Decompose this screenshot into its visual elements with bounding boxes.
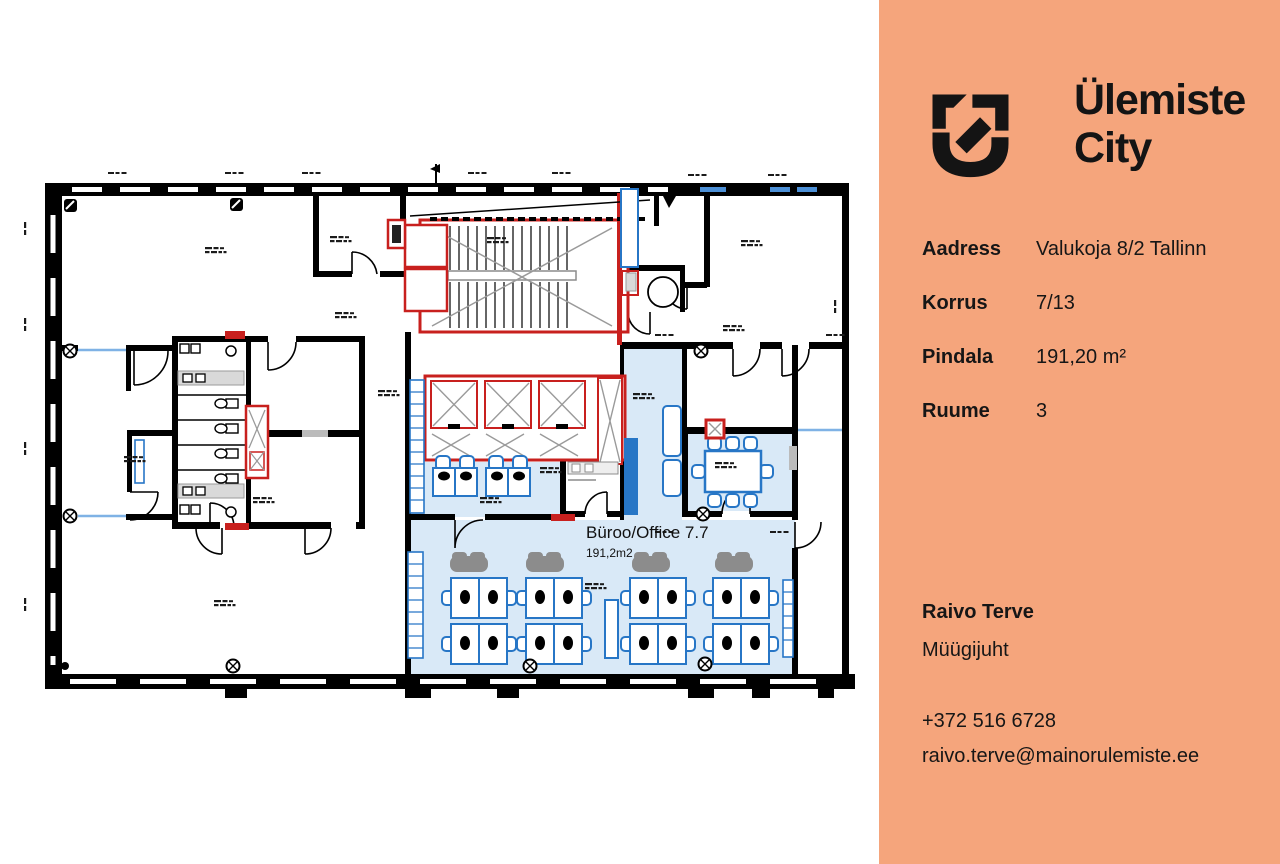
detail-value: 7/13	[1036, 292, 1075, 314]
property-datasheet: Büroo/Office 7.7 191,2m2 Ülemiste City	[0, 0, 1280, 864]
property-details: Aadress Valukoja 8/2 Tallinn Korrus 7/13…	[922, 238, 1262, 454]
stair-core	[388, 193, 650, 345]
elevator-core	[425, 376, 625, 464]
detail-row-floor: Korrus 7/13	[922, 292, 1262, 314]
wc-round-room	[622, 271, 678, 307]
detail-label: Ruume	[922, 400, 1036, 422]
ulemiste-city-logo-icon	[923, 80, 1018, 185]
info-panel: Ülemiste City Aadress Valukoja 8/2 Talli…	[879, 0, 1280, 864]
contact-email: raivo.terve@mainorulemiste.ee	[922, 745, 1199, 767]
detail-value: 191,20 m²	[1036, 346, 1126, 368]
floorplan-area: Büroo/Office 7.7 191,2m2	[0, 0, 879, 864]
brand-line1: Ülemiste	[1074, 76, 1245, 124]
contact-phone: +372 516 6728	[922, 710, 1199, 732]
contact-name: Raivo Terve	[922, 601, 1199, 623]
brand-wordmark: Ülemiste City	[1074, 76, 1245, 172]
contact-block: Raivo Terve Müügijuht +372 516 6728 raiv…	[922, 601, 1199, 767]
wc-block	[178, 331, 328, 530]
detail-label: Korrus	[922, 292, 1036, 314]
detail-value: Valukoja 8/2 Tallinn	[1036, 238, 1207, 260]
office-room-label: Büroo/Office 7.7	[586, 523, 709, 542]
contact-role: Müügijuht	[922, 639, 1199, 661]
office-area-label: 191,2m2	[586, 546, 633, 560]
detail-label: Pindala	[922, 346, 1036, 368]
detail-value: 3	[1036, 400, 1047, 422]
floorplan-svg: Büroo/Office 7.7 191,2m2	[0, 0, 879, 864]
detail-label: Aadress	[922, 238, 1036, 260]
detail-row-area: Pindala 191,20 m²	[922, 346, 1262, 368]
brand-line2: City	[1074, 124, 1245, 172]
detail-row-address: Aadress Valukoja 8/2 Tallinn	[922, 238, 1262, 260]
detail-row-rooms: Ruume 3	[922, 400, 1262, 422]
